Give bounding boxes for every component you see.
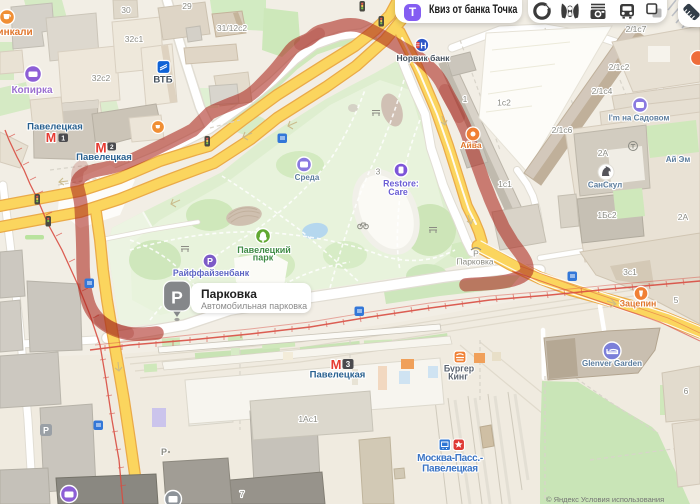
svg-text:2А: 2А [598, 148, 609, 158]
svg-text:Айва: Айва [460, 140, 481, 150]
svg-text:Павелецкая: Павелецкая [422, 464, 478, 475]
svg-text:3с1: 3с1 [623, 267, 637, 277]
svg-text:1: 1 [463, 94, 468, 104]
svg-text:1Ас1: 1Ас1 [298, 414, 318, 424]
svg-text:6: 6 [684, 386, 689, 396]
svg-text:СанСкул: СанСкул [588, 181, 622, 190]
svg-text:32с2: 32с2 [92, 73, 111, 83]
svg-text:Парковка: Парковка [456, 257, 494, 267]
svg-text:32с1: 32с1 [125, 34, 144, 44]
svg-text:2/1с6: 2/1с6 [552, 125, 573, 135]
svg-text:Н: Н [420, 41, 426, 51]
svg-text:Москва-Пасс.-: Москва-Пасс.- [417, 453, 483, 464]
svg-text:1с1: 1с1 [498, 179, 512, 189]
svg-text:2/1с7: 2/1с7 [626, 24, 647, 34]
svg-text:1Бс2: 1Бс2 [597, 210, 617, 220]
svg-text:2А: 2А [678, 212, 689, 222]
svg-text:Павелецкая: Павелецкая [310, 370, 366, 381]
svg-text:3: 3 [376, 167, 381, 177]
svg-text:Кинг: Кинг [448, 372, 468, 382]
svg-text:Зацепин: Зацепин [620, 299, 657, 309]
svg-text:Care: Care [388, 187, 408, 197]
svg-text:5: 5 [674, 295, 679, 305]
svg-text:Павелецкая: Павелецкая [76, 152, 132, 163]
svg-text:Р: Р [207, 257, 213, 267]
svg-text:7: 7 [240, 489, 245, 499]
svg-text:М: М [46, 131, 56, 145]
svg-text:1: 1 [61, 136, 65, 143]
svg-text:3: 3 [346, 360, 351, 369]
svg-text:P: P [43, 426, 49, 436]
svg-text:P: P [171, 288, 183, 308]
svg-text:2: 2 [110, 144, 114, 151]
svg-text:ВТБ: ВТБ [153, 75, 172, 86]
svg-text:30: 30 [121, 5, 131, 15]
svg-text:Ай Эм: Ай Эм [666, 155, 691, 164]
svg-text:Райффайзенбанк: Райффайзенбанк [173, 268, 250, 278]
svg-text:Норвик банк: Норвик банк [397, 53, 451, 63]
svg-text:31/12с2: 31/12с2 [217, 23, 248, 33]
svg-text:Glenver Garden: Glenver Garden [582, 359, 642, 368]
svg-text:2/1с4: 2/1с4 [592, 86, 613, 96]
svg-text:Копирка: Копирка [11, 85, 53, 96]
svg-text:© Яндекс Условия использов: © Яндекс Условия использования [546, 495, 664, 504]
svg-text:Павелецкая: Павелецкая [27, 122, 83, 133]
svg-text:Среда: Среда [295, 173, 320, 182]
svg-text:I'm на Садовом: I'm на Садовом [609, 114, 670, 123]
svg-text:2/1с2: 2/1с2 [609, 62, 630, 72]
svg-text:Р: Р [161, 447, 167, 457]
svg-text:1с2: 1с2 [497, 98, 511, 108]
svg-text:парк: парк [253, 253, 274, 263]
svg-text:29: 29 [182, 1, 192, 11]
svg-text:Кинкали: Кинкали [0, 27, 33, 38]
